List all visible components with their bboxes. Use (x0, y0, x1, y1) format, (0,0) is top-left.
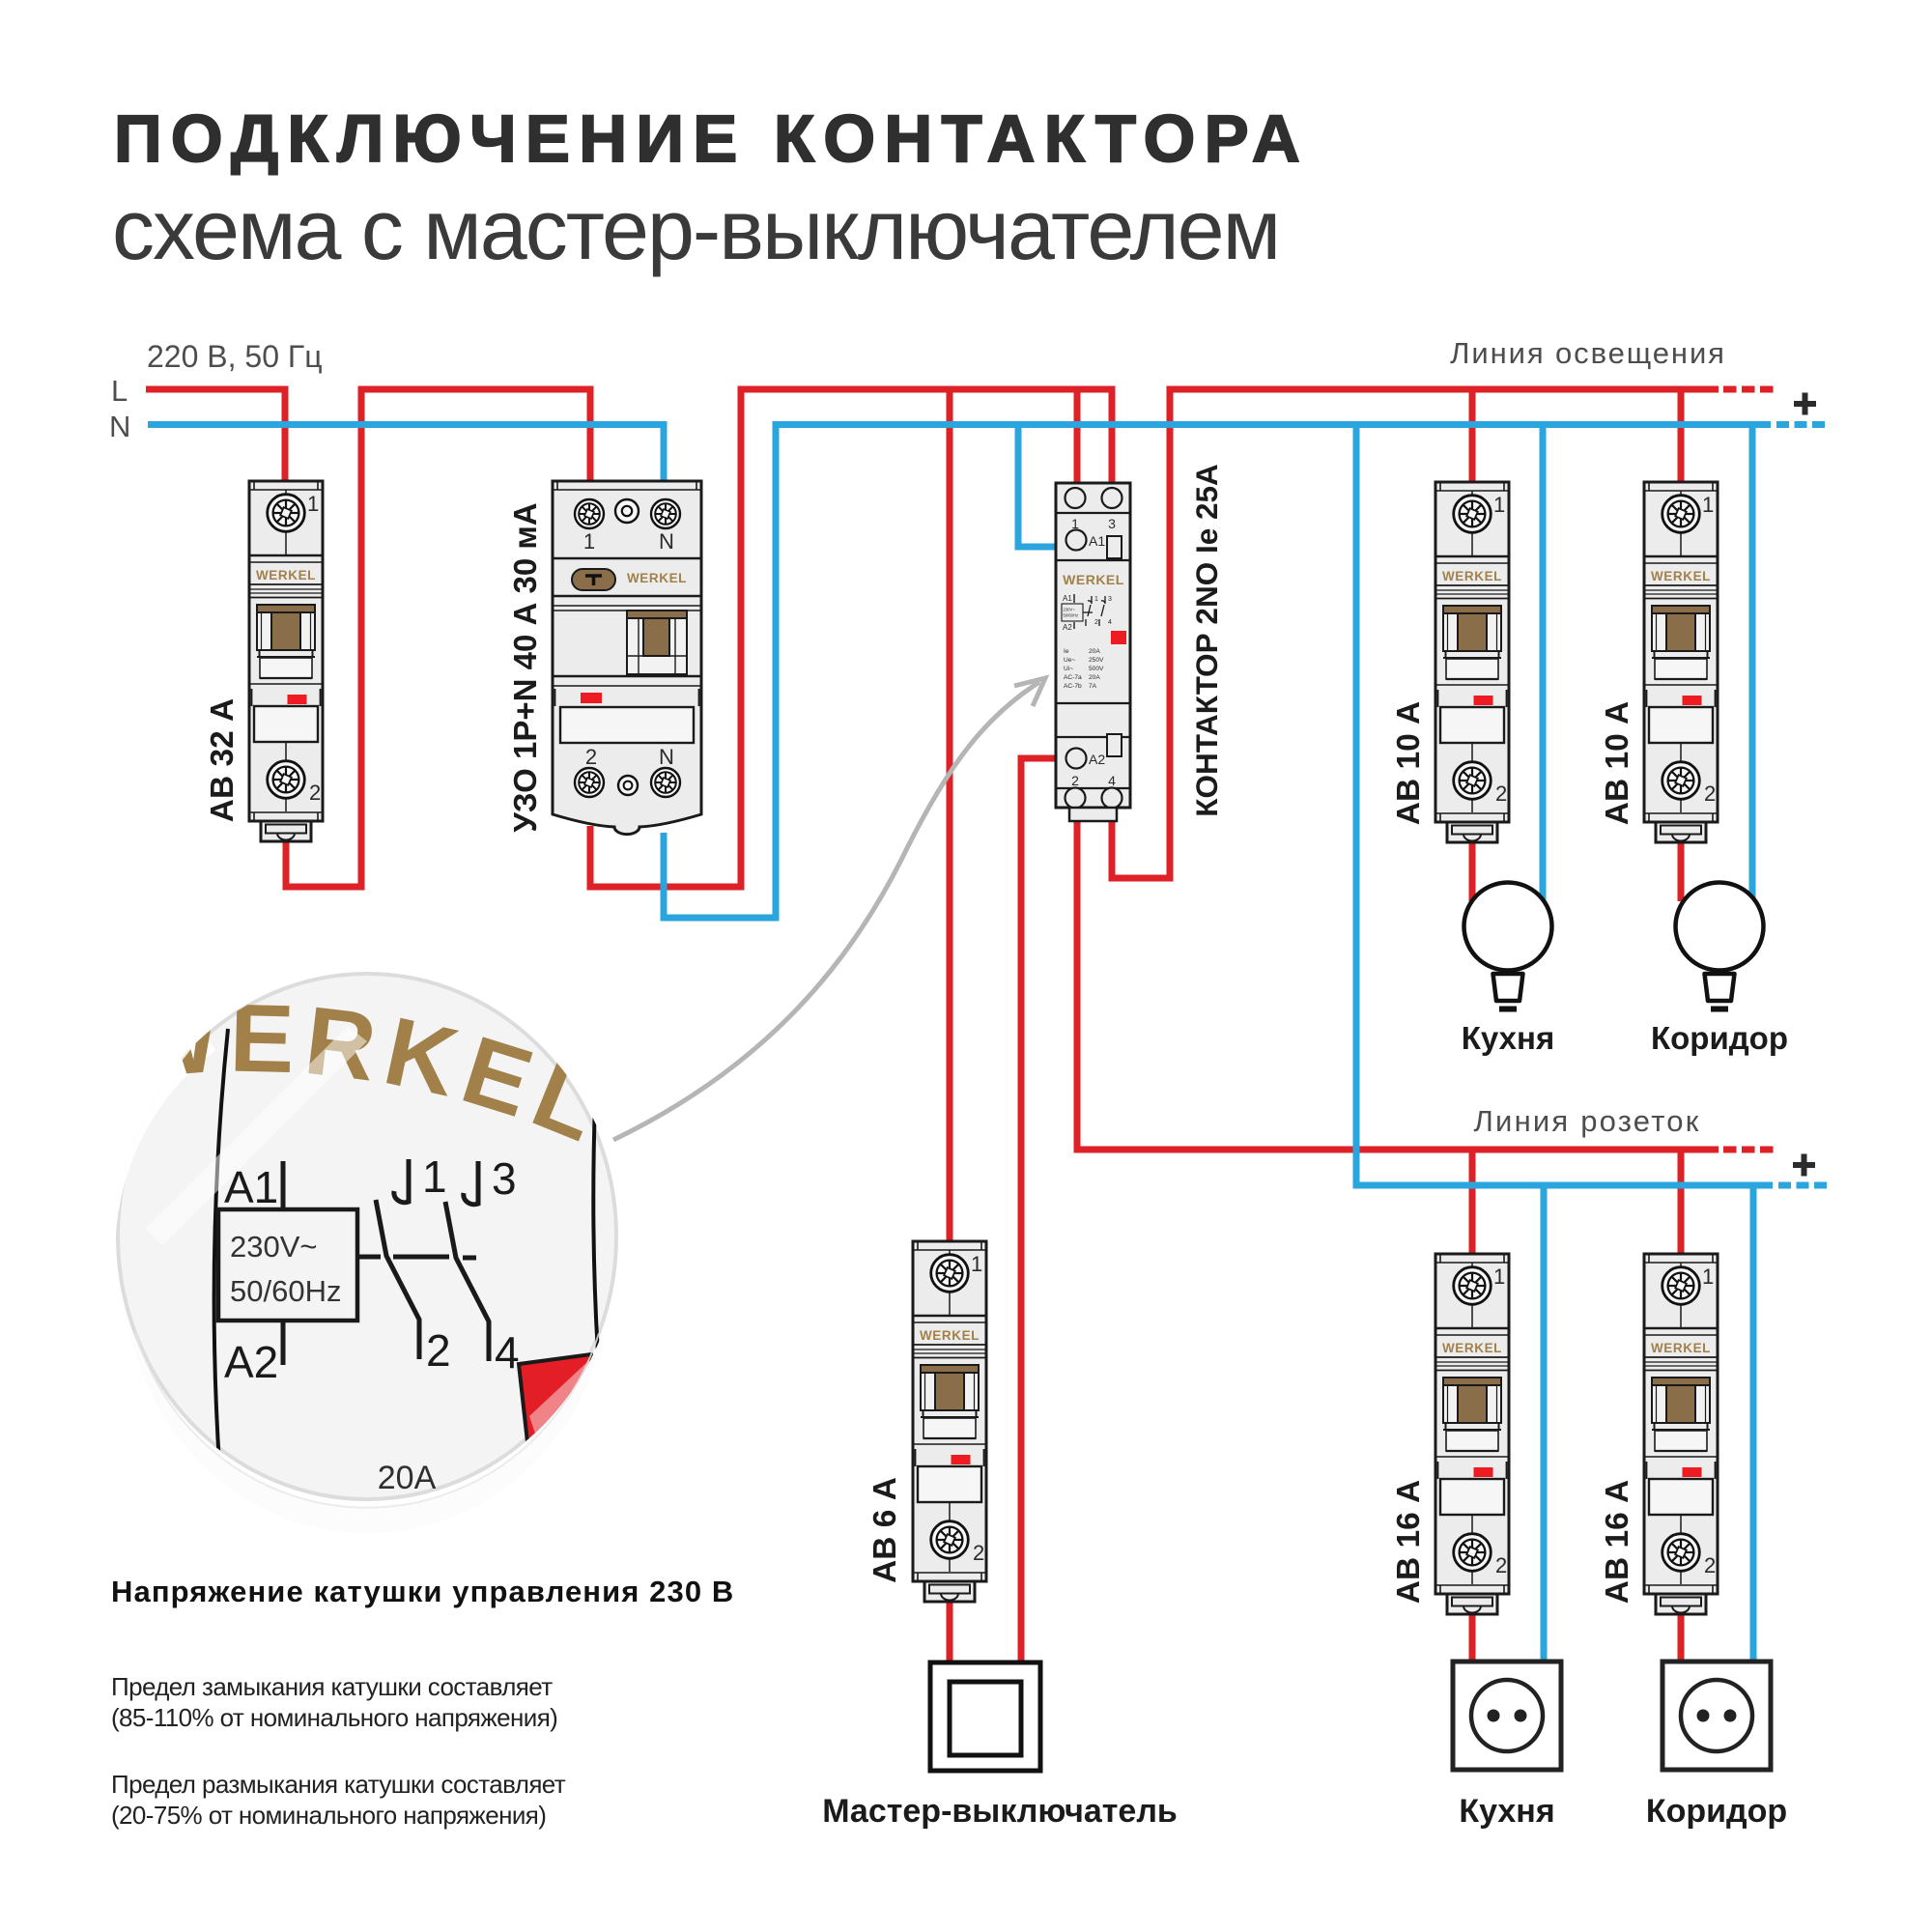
svg-text:20A: 20A (378, 1460, 437, 1496)
svg-text:A2: A2 (224, 1337, 278, 1387)
svg-text:20A: 20A (1089, 674, 1100, 681)
svg-text:АВ 16 А: АВ 16 А (1391, 1480, 1427, 1604)
svg-text:3: 3 (1108, 596, 1112, 603)
svg-text:230V~: 230V~ (1064, 608, 1076, 612)
svg-text:2: 2 (426, 1325, 451, 1376)
svg-text:Линия освещения: Линия освещения (1450, 336, 1726, 370)
svg-text:250V: 250V (1089, 657, 1104, 664)
svg-text:УЗО 1P+N 40 А 30 мА: УЗО 1P+N 40 А 30 мА (507, 502, 543, 832)
svg-text:N: N (659, 745, 674, 769)
svg-text:A1: A1 (1063, 594, 1072, 603)
svg-text:Мастер-выключатель: Мастер-выключатель (822, 1793, 1178, 1830)
svg-text:AC-7a: AC-7a (1064, 674, 1082, 681)
svg-text:N: N (109, 410, 130, 443)
svg-text:N: N (659, 529, 674, 554)
svg-text:АВ 16 А: АВ 16 А (1600, 1480, 1635, 1604)
svg-text:Ue~: Ue~ (1064, 657, 1075, 664)
svg-text:КОНТАКТОР 2NO Ie 25А: КОНТАКТОР 2NO Ie 25А (1189, 464, 1224, 817)
svg-text:Ui~: Ui~ (1064, 666, 1073, 672)
svg-text:2: 2 (585, 745, 597, 769)
svg-text:4: 4 (1108, 773, 1116, 788)
svg-text:230V~: 230V~ (230, 1230, 318, 1264)
svg-text:A2: A2 (1063, 623, 1072, 632)
svg-text:L: L (111, 374, 128, 408)
svg-text:АВ 10 А: АВ 10 А (1600, 701, 1635, 825)
svg-text:3: 3 (492, 1153, 517, 1204)
svg-text:7A: 7A (1089, 683, 1097, 690)
svg-text:WERKEL: WERKEL (1063, 572, 1124, 587)
svg-text:A1: A1 (1089, 533, 1105, 549)
svg-text:АВ 6 А: АВ 6 А (867, 1477, 903, 1583)
svg-text:АВ 32 А: АВ 32 А (205, 698, 241, 822)
svg-text:20A: 20A (1089, 648, 1100, 655)
svg-text:1: 1 (422, 1151, 447, 1202)
svg-text:1: 1 (583, 529, 595, 554)
svg-text:50/60Hz: 50/60Hz (1064, 613, 1079, 618)
svg-text:4: 4 (495, 1327, 520, 1378)
svg-text:Кухня: Кухня (1459, 1793, 1554, 1830)
svg-text:(85-110% от номинального напря: (85-110% от номинального напряжения) (111, 1703, 557, 1732)
svg-text:Коридор: Коридор (1646, 1793, 1787, 1830)
svg-text:Предел размыкания катушки сост: Предел размыкания катушки составляет (111, 1770, 566, 1799)
svg-text:Напряжение катушки управления: Напряжение катушки управления 230 В (111, 1575, 734, 1608)
svg-text:Кухня: Кухня (1462, 1020, 1554, 1056)
svg-text:Коридор: Коридор (1651, 1020, 1788, 1056)
svg-text:500V: 500V (1089, 666, 1104, 672)
svg-text:WERKEL: WERKEL (627, 571, 687, 585)
svg-text:ПОДКЛЮЧЕНИЕ КОНТАКТОРА: ПОДКЛЮЧЕНИЕ КОНТАКТОРА (114, 101, 1309, 176)
svg-text:2: 2 (1094, 619, 1098, 626)
svg-text:схема с мастер-выключателем: схема с мастер-выключателем (112, 182, 1279, 277)
svg-text:Ie: Ie (1064, 648, 1069, 655)
svg-text:АВ 10 А: АВ 10 А (1391, 701, 1427, 825)
svg-text:50/60Hz: 50/60Hz (230, 1274, 341, 1308)
svg-text:A2: A2 (1089, 752, 1105, 767)
svg-text:Линия розеток: Линия розеток (1474, 1104, 1701, 1138)
svg-text:A1: A1 (224, 1162, 278, 1212)
svg-text:2: 2 (1071, 773, 1079, 788)
svg-text:AC-7b: AC-7b (1064, 683, 1082, 690)
svg-text:Предел замыкания катушки соста: Предел замыкания катушки составляет (111, 1672, 553, 1701)
svg-text:(20-75% от номинального напряж: (20-75% от номинального напряжения) (111, 1801, 546, 1830)
svg-text:220 В, 50 Гц: 220 В, 50 Гц (147, 339, 323, 374)
svg-text:3: 3 (1108, 516, 1116, 531)
svg-text:1: 1 (1094, 596, 1098, 603)
svg-text:4: 4 (1108, 619, 1112, 626)
